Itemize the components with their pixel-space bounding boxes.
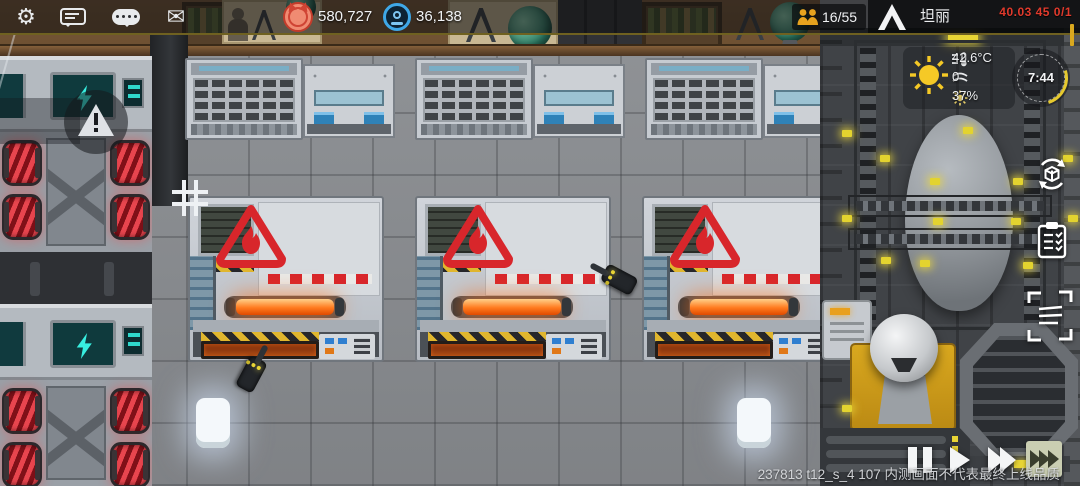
blue-badge-coin-icon[interactable] [383,3,411,31]
fuel-capsule [2,388,42,434]
population-value: 16/55 [822,4,857,30]
truss-bar [848,195,1052,217]
hazard-stripe [201,332,319,341]
hazard-dash-strip [722,274,826,284]
robot-visor [891,358,917,372]
mail-envelope-icon[interactable]: ✉ [162,0,190,34]
red-resource-value: 580,727 [318,0,372,34]
generator-body[interactable] [0,380,152,486]
hazard-dash-strip [495,274,599,284]
pipe-module [644,256,670,330]
clock-time: 7:44 [1012,49,1070,107]
heat-glow-bar [451,296,573,318]
mini-display [122,326,144,356]
desk-front-edge [0,44,820,56]
floor-light [737,398,771,448]
colony-name: 坦丽 [920,0,950,34]
vent-unit [415,58,533,140]
flame-warning-sign [668,204,742,268]
game-viewport[interactable]: 42.6°C 0 37% 7:44 ⚙ ✉ 580,727 [0,0,1080,486]
blue-resource-value: 36,138 [416,0,462,34]
hazard-stripe [428,332,546,341]
lower-body [647,332,833,357]
hud-divider-line [0,33,1080,35]
generator-plate [46,138,106,246]
floor-light [196,398,230,448]
mini-display [122,78,144,108]
screen-partial [0,322,26,366]
vent-unit [645,58,763,140]
wind-value: 0 [952,69,959,84]
yellow-marker [1070,24,1074,46]
console-unit [533,64,625,138]
settings-gear-icon[interactable]: ⚙ [12,0,40,34]
storage-machine[interactable] [185,58,395,140]
temperature-value: 42.6°C [952,50,992,65]
hazard-dash-strip [268,274,372,284]
fuel-capsule [2,194,42,240]
warning-bubble[interactable] [64,90,128,154]
ladder-strip [860,48,876,320]
power-screen [50,320,116,368]
fuel-capsule [110,194,150,240]
hazard-stripe [655,332,773,341]
ash-tray [655,341,773,359]
top-hud-bar: ⚙ ✉ 580,727 36,138 16/55 坦丽 [0,0,1080,34]
incinerator-machine-selected[interactable] [188,196,384,362]
heat-glow-bar [224,296,346,318]
people-icon [796,8,820,26]
fuel-capsule [110,388,150,434]
fuel-capsule [2,442,42,486]
warning-triangle-icon [78,104,114,136]
flame-warning-sign [214,204,288,268]
control-panel [319,334,375,359]
lightning-icon [71,333,97,359]
robot-head[interactable] [870,314,938,382]
flame-warning-sign [441,204,515,268]
truss-bar [848,228,1052,250]
game-clock[interactable]: 7:44 [1012,49,1070,107]
lower-body [193,332,379,357]
population-chip[interactable]: 16/55 [792,4,866,30]
mid-band [193,320,379,332]
chat-bubble-icon[interactable] [60,8,86,25]
fuel-capsule [110,442,150,486]
heat-glow-bar [678,296,800,318]
incinerator-machine[interactable] [642,196,838,362]
mid-band [420,320,606,332]
debug-readout: 40.03 45 0/1 [999,5,1072,19]
floor-gap [0,252,152,304]
vent-unit [185,58,303,140]
console-unit [303,64,395,138]
control-panel [546,334,602,359]
fuel-capsule [2,140,42,186]
generator-console[interactable] [0,304,152,380]
panel-left-edge [820,28,842,486]
build-watermark: 237813 t12_s_4 107 内测画面不代表最终上线品质 [758,463,1060,483]
generator-plate [46,386,106,480]
ash-tray [428,341,546,359]
storage-machine[interactable] [415,58,625,140]
lower-body [420,332,606,357]
pipe-module [417,256,443,330]
mid-band [647,320,833,332]
sms-bubble-icon[interactable] [112,9,140,25]
red-creature-coin-icon[interactable] [283,2,313,32]
incinerator-machine[interactable] [415,196,611,362]
generator-body[interactable] [0,132,152,252]
humidity-value: 37% [952,88,978,103]
pipe-module [190,256,216,330]
